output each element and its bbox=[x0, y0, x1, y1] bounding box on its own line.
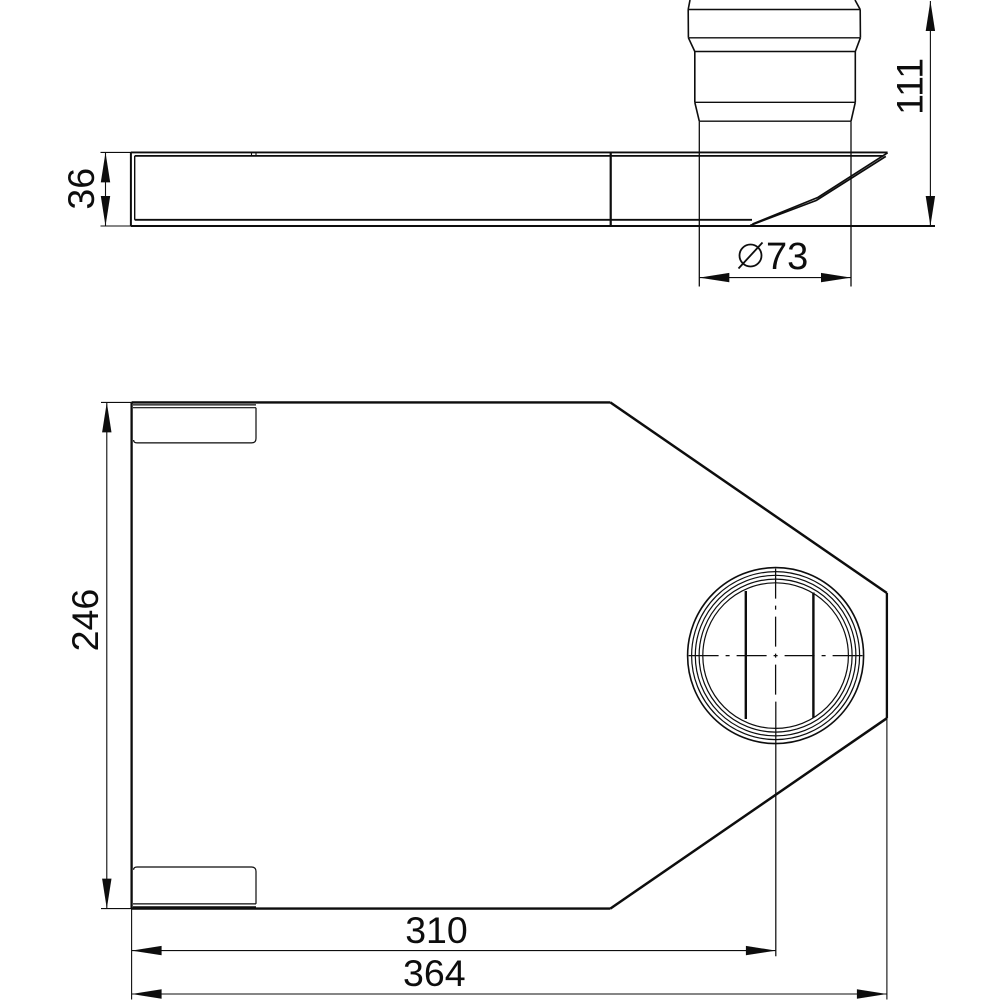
svg-text:364: 364 bbox=[403, 952, 466, 994]
svg-text:310: 310 bbox=[405, 909, 468, 951]
svg-text:73: 73 bbox=[766, 236, 808, 278]
svg-text:111: 111 bbox=[888, 58, 930, 115]
svg-text:36: 36 bbox=[60, 168, 102, 210]
svg-text:246: 246 bbox=[64, 589, 106, 652]
